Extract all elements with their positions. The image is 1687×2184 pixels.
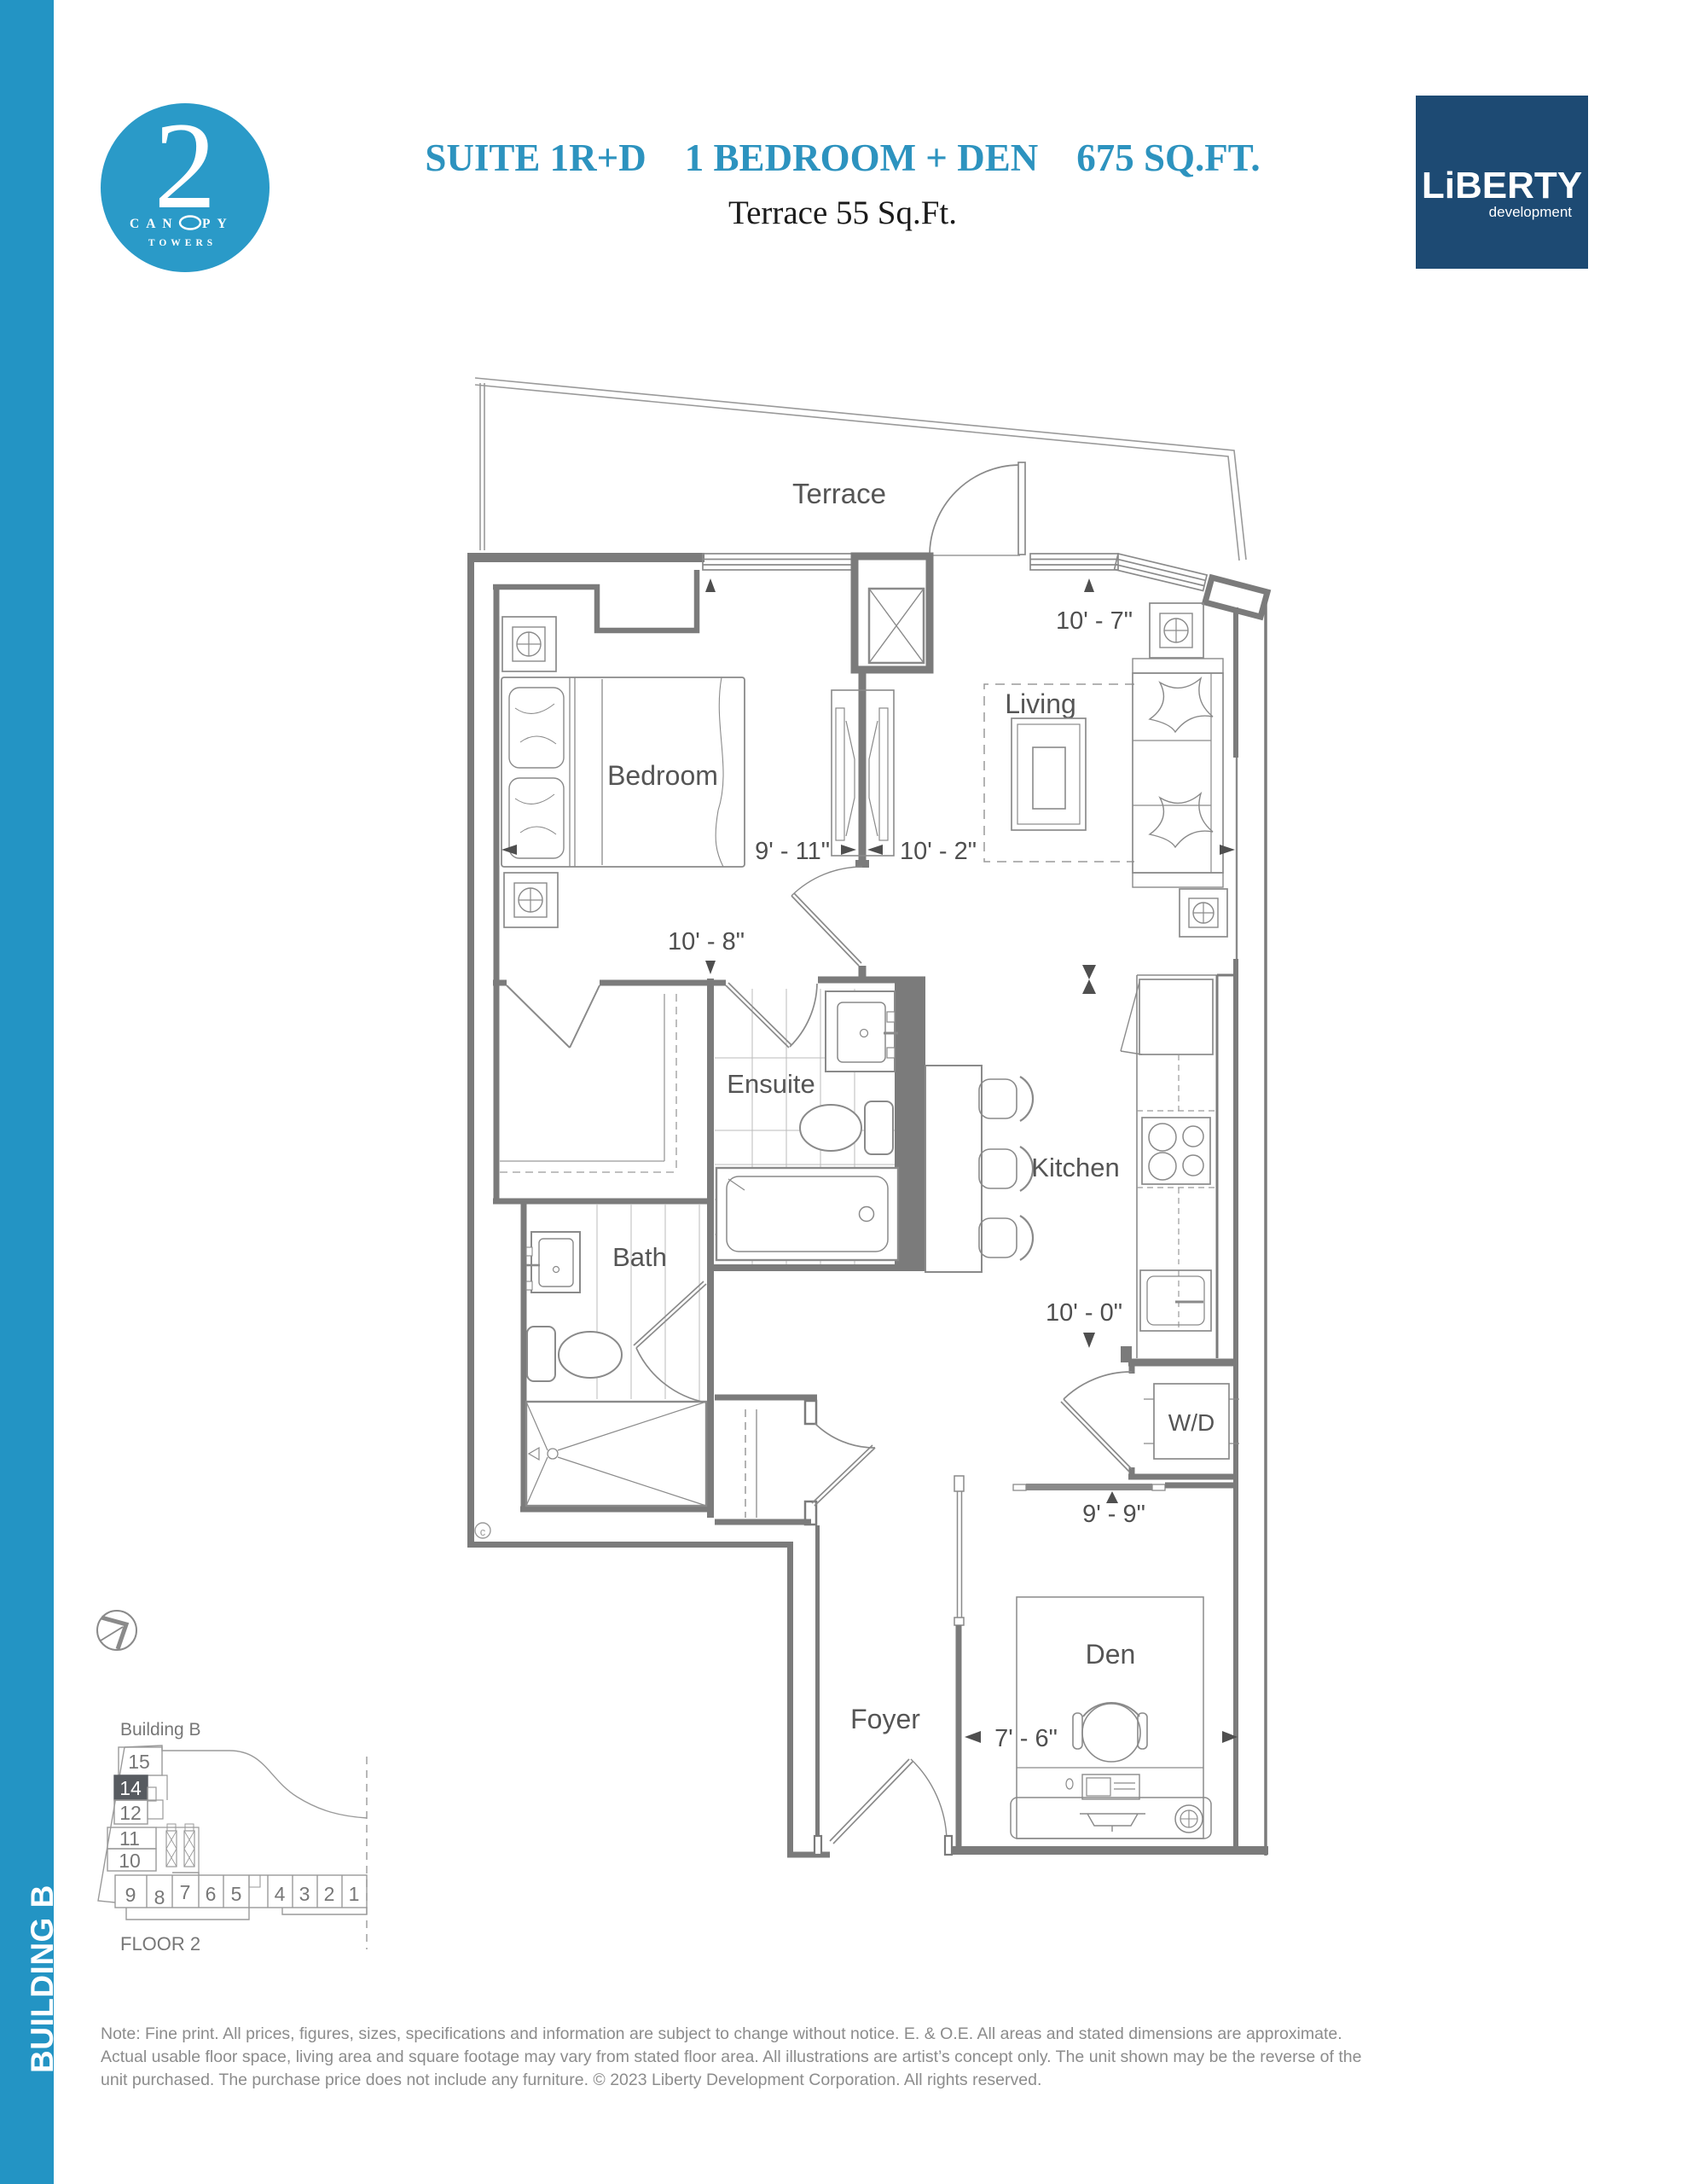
svg-text:10' - 2": 10' - 2" <box>900 838 977 865</box>
svg-text:FLOOR 2: FLOOR 2 <box>120 1933 200 1955</box>
svg-text:3: 3 <box>299 1883 310 1905</box>
svg-text:c: c <box>480 1525 486 1538</box>
svg-text:Building B: Building B <box>120 1720 201 1740</box>
svg-text:Note: Fine print. All prices,: Note: Fine print. All prices, figures, s… <box>101 2024 1342 2043</box>
svg-text:Terrace: Terrace <box>792 478 886 509</box>
svg-text:9' - 11": 9' - 11" <box>755 838 830 865</box>
svg-text:2: 2 <box>324 1883 335 1905</box>
svg-text:Living: Living <box>1005 688 1076 719</box>
svg-text:Actual usable floor space, liv: Actual usable floor space, living area a… <box>101 2047 1361 2066</box>
svg-text:9' - 9": 9' - 9" <box>1082 1501 1145 1528</box>
svg-text:10: 10 <box>119 1850 141 1872</box>
svg-text:development: development <box>1489 204 1573 220</box>
svg-text:PY: PY <box>202 217 234 231</box>
svg-text:15: 15 <box>128 1751 150 1773</box>
svg-text:1: 1 <box>349 1883 360 1905</box>
svg-text:7' - 6": 7' - 6" <box>994 1725 1058 1752</box>
svg-text:unit purchased. The purchase p: unit purchased. The purchase price does … <box>101 2071 1041 2089</box>
svg-text:Bedroom: Bedroom <box>607 760 718 791</box>
svg-text:Ensuite: Ensuite <box>727 1069 815 1099</box>
svg-text:9: 9 <box>125 1884 136 1906</box>
svg-text:2: 2 <box>154 96 217 235</box>
svg-text:Bath: Bath <box>612 1242 667 1272</box>
svg-text:CAN: CAN <box>130 217 179 231</box>
svg-text:10' - 7": 10' - 7" <box>1056 607 1133 635</box>
svg-text:Kitchen: Kitchen <box>1031 1153 1119 1182</box>
svg-text:W/D: W/D <box>1168 1409 1215 1436</box>
svg-text:6: 6 <box>206 1883 217 1905</box>
svg-text:12: 12 <box>119 1802 142 1824</box>
svg-text:8: 8 <box>154 1886 165 1908</box>
svg-text:Terrace 55 Sq.Ft.: Terrace 55 Sq.Ft. <box>728 195 957 231</box>
svg-text:SUITE 1R+D 1 BEDROOM + DEN 675: SUITE 1R+D 1 BEDROOM + DEN 675 SQ.FT. <box>425 136 1260 179</box>
svg-text:5: 5 <box>231 1883 242 1905</box>
svg-text:BUILDING B: BUILDING B <box>25 1885 60 2073</box>
svg-text:Foyer: Foyer <box>850 1704 920 1734</box>
svg-text:11: 11 <box>119 1827 140 1850</box>
svg-text:10' - 0": 10' - 0" <box>1046 1299 1122 1327</box>
svg-text:10' - 8": 10' - 8" <box>668 928 745 955</box>
svg-text:Den: Den <box>1086 1639 1136 1670</box>
svg-text:TOWERS: TOWERS <box>148 238 217 248</box>
svg-text:7: 7 <box>180 1881 191 1903</box>
svg-text:14: 14 <box>119 1777 142 1799</box>
svg-text:LiBERTY: LiBERTY <box>1422 165 1582 206</box>
svg-text:4: 4 <box>275 1883 286 1905</box>
